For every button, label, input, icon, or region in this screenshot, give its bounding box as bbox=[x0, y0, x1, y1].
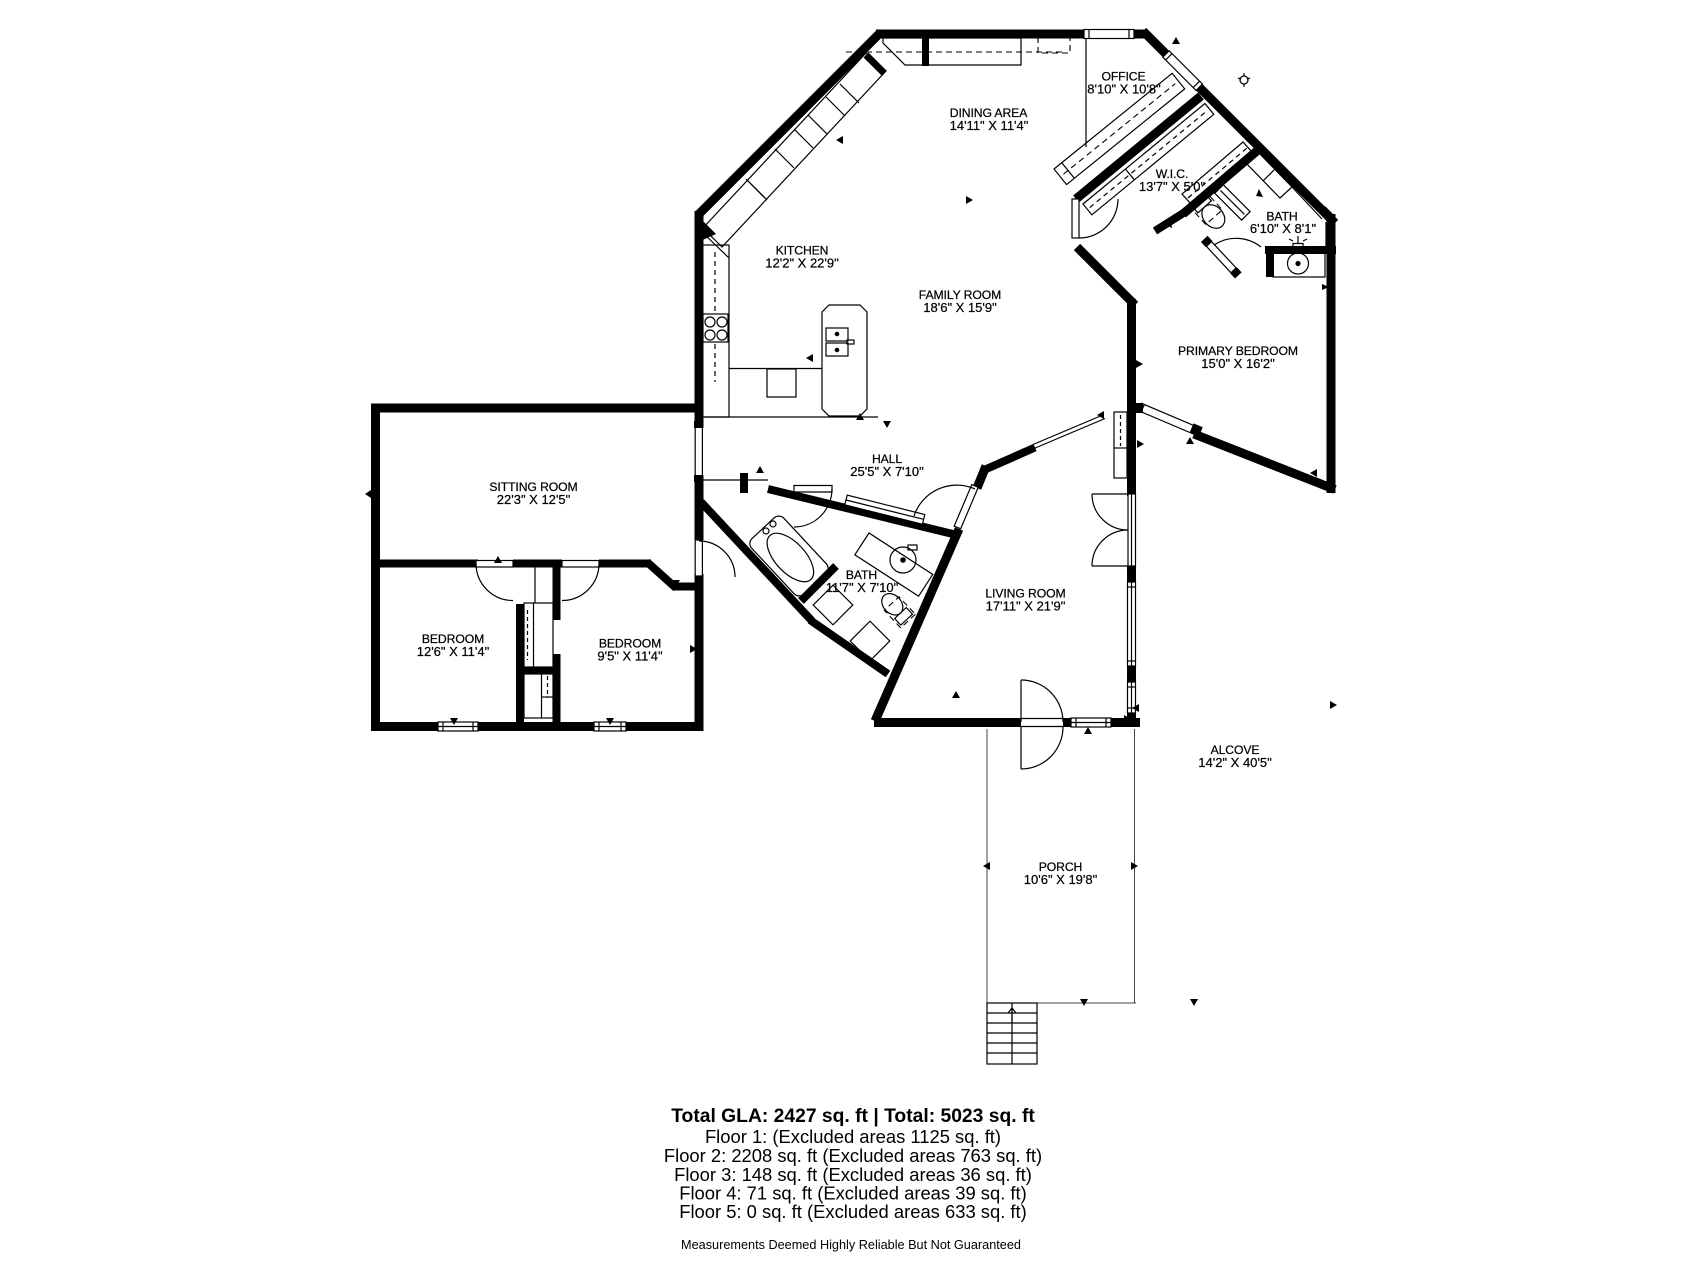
svg-text:Total GLA: 2427 sq. ft | Total: Total GLA: 2427 sq. ft | Total: 5023 sq.… bbox=[671, 1106, 1035, 1127]
svg-text:12'6" X 11'4": 12'6" X 11'4" bbox=[417, 644, 490, 659]
svg-text:15'0" X 16'2": 15'0" X 16'2" bbox=[1201, 356, 1275, 371]
svg-text:Measurements Deemed Highly Rel: Measurements Deemed Highly Reliable But … bbox=[681, 1238, 1021, 1252]
svg-text:Floor 1: (Excluded areas 1125: Floor 1: (Excluded areas 1125 sq. ft) bbox=[705, 1126, 1001, 1147]
svg-text:14'11" X 11'4": 14'11" X 11'4" bbox=[950, 118, 1029, 133]
svg-text:8'10" X 10'8": 8'10" X 10'8" bbox=[1087, 82, 1161, 97]
svg-text:Floor 5: 0 sq. ft (Excluded ar: Floor 5: 0 sq. ft (Excluded areas 633 sq… bbox=[679, 1201, 1027, 1222]
svg-text:17'11" X 21'9": 17'11" X 21'9" bbox=[986, 599, 1066, 614]
svg-text:12'2" X 22'9": 12'2" X 22'9" bbox=[765, 256, 839, 271]
svg-text:6'10" X 8'1": 6'10" X 8'1" bbox=[1250, 221, 1317, 236]
svg-text:25'5" X 7'10": 25'5" X 7'10" bbox=[850, 464, 924, 479]
svg-text:11'7" X 7'10": 11'7" X 7'10" bbox=[826, 580, 899, 595]
svg-text:10'6" X 19'8": 10'6" X 19'8" bbox=[1024, 872, 1098, 887]
svg-text:13'7" X 5'0": 13'7" X 5'0" bbox=[1139, 179, 1206, 194]
svg-text:22'3" X 12'5": 22'3" X 12'5" bbox=[497, 492, 571, 507]
svg-text:14'2" X 40'5": 14'2" X 40'5" bbox=[1198, 755, 1272, 770]
svg-text:9'5" X 11'4": 9'5" X 11'4" bbox=[597, 649, 663, 664]
svg-text:Floor 2: 2208 sq. ft (Excluded: Floor 2: 2208 sq. ft (Excluded areas 763… bbox=[664, 1145, 1042, 1166]
svg-text:18'6" X 15'9": 18'6" X 15'9" bbox=[923, 300, 997, 315]
